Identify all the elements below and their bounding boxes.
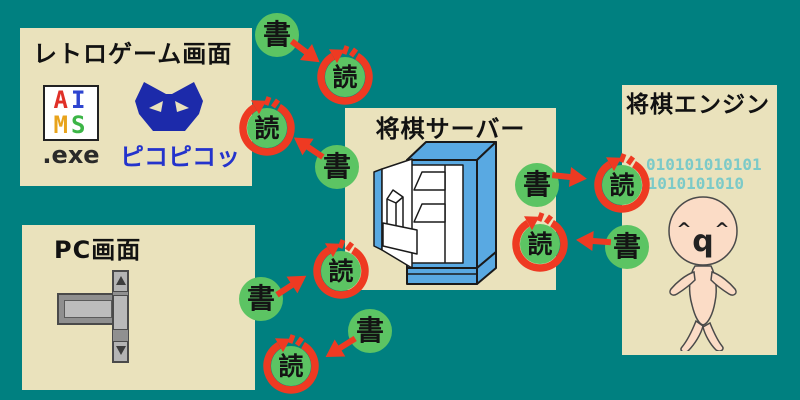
panel-shogi-engine: 将棋エンジン 010101010101 01010101010 ^ q ^: [622, 85, 777, 355]
cat-icon: [133, 81, 205, 133]
binary-line-1: 010101010101: [646, 155, 762, 174]
app-icon-line1: AI: [45, 88, 97, 113]
svg-text:読: 読: [328, 257, 353, 286]
text-field-inner: [64, 300, 112, 318]
retro-game-title: レトロゲーム画面: [33, 41, 232, 67]
mascot-left-eye: ^: [676, 219, 691, 240]
scroll-up-button: [113, 271, 128, 292]
shogi-engine-title: 将棋エンジン: [626, 93, 770, 118]
pc-screen-title: PC画面: [54, 237, 141, 263]
scroll-down-button: [113, 341, 128, 362]
refrigerator-icon: [362, 126, 507, 288]
engine-mascot-icon: ^ q ^: [658, 195, 748, 351]
exe-label: .exe: [27, 141, 115, 169]
panel-pc-screen: PC画面: [22, 225, 255, 390]
scroll-up-arrow-icon: [116, 276, 126, 285]
mascot-mouth: q: [692, 224, 713, 259]
mascot-right-eye: ^: [714, 219, 729, 240]
read-badge: 読: [592, 153, 652, 213]
svg-text:読: 読: [609, 171, 634, 200]
rotation-arrow-icon: 読: [592, 153, 652, 213]
flow-arrow-icon: [551, 163, 589, 191]
svg-text:読: 読: [254, 114, 279, 143]
exe-app-icon: AI MS: [43, 85, 99, 141]
text-field-illustration: [57, 293, 119, 325]
scrollbar-illustration: [112, 270, 129, 363]
svg-text:読: 読: [332, 63, 357, 92]
svg-text:読: 読: [527, 230, 552, 259]
svg-text:読: 読: [278, 352, 303, 381]
binary-line-2: 01010101010: [638, 174, 744, 193]
rotation-arrow-icon: 読: [510, 212, 570, 272]
pico-pico-caption: ピコピコッ: [113, 137, 247, 172]
read-badge: 読: [261, 334, 321, 394]
flow-arrow-icon: [574, 228, 612, 254]
rotation-arrow-icon: 読: [261, 334, 321, 394]
rotation-arrow-icon: 読: [311, 239, 371, 299]
read-badge: 読: [311, 239, 371, 299]
scroll-down-arrow-icon: [116, 346, 126, 355]
read-badge: 読: [510, 212, 570, 272]
scrollbar-thumb: [113, 295, 128, 330]
diagram-canvas: レトロゲーム画面 AI MS .exe ピコピコッ PC画面: [0, 0, 800, 400]
app-icon-line2: MS: [45, 113, 97, 138]
panel-retro-game-screen: レトロゲーム画面 AI MS .exe ピコピコッ: [20, 28, 252, 186]
